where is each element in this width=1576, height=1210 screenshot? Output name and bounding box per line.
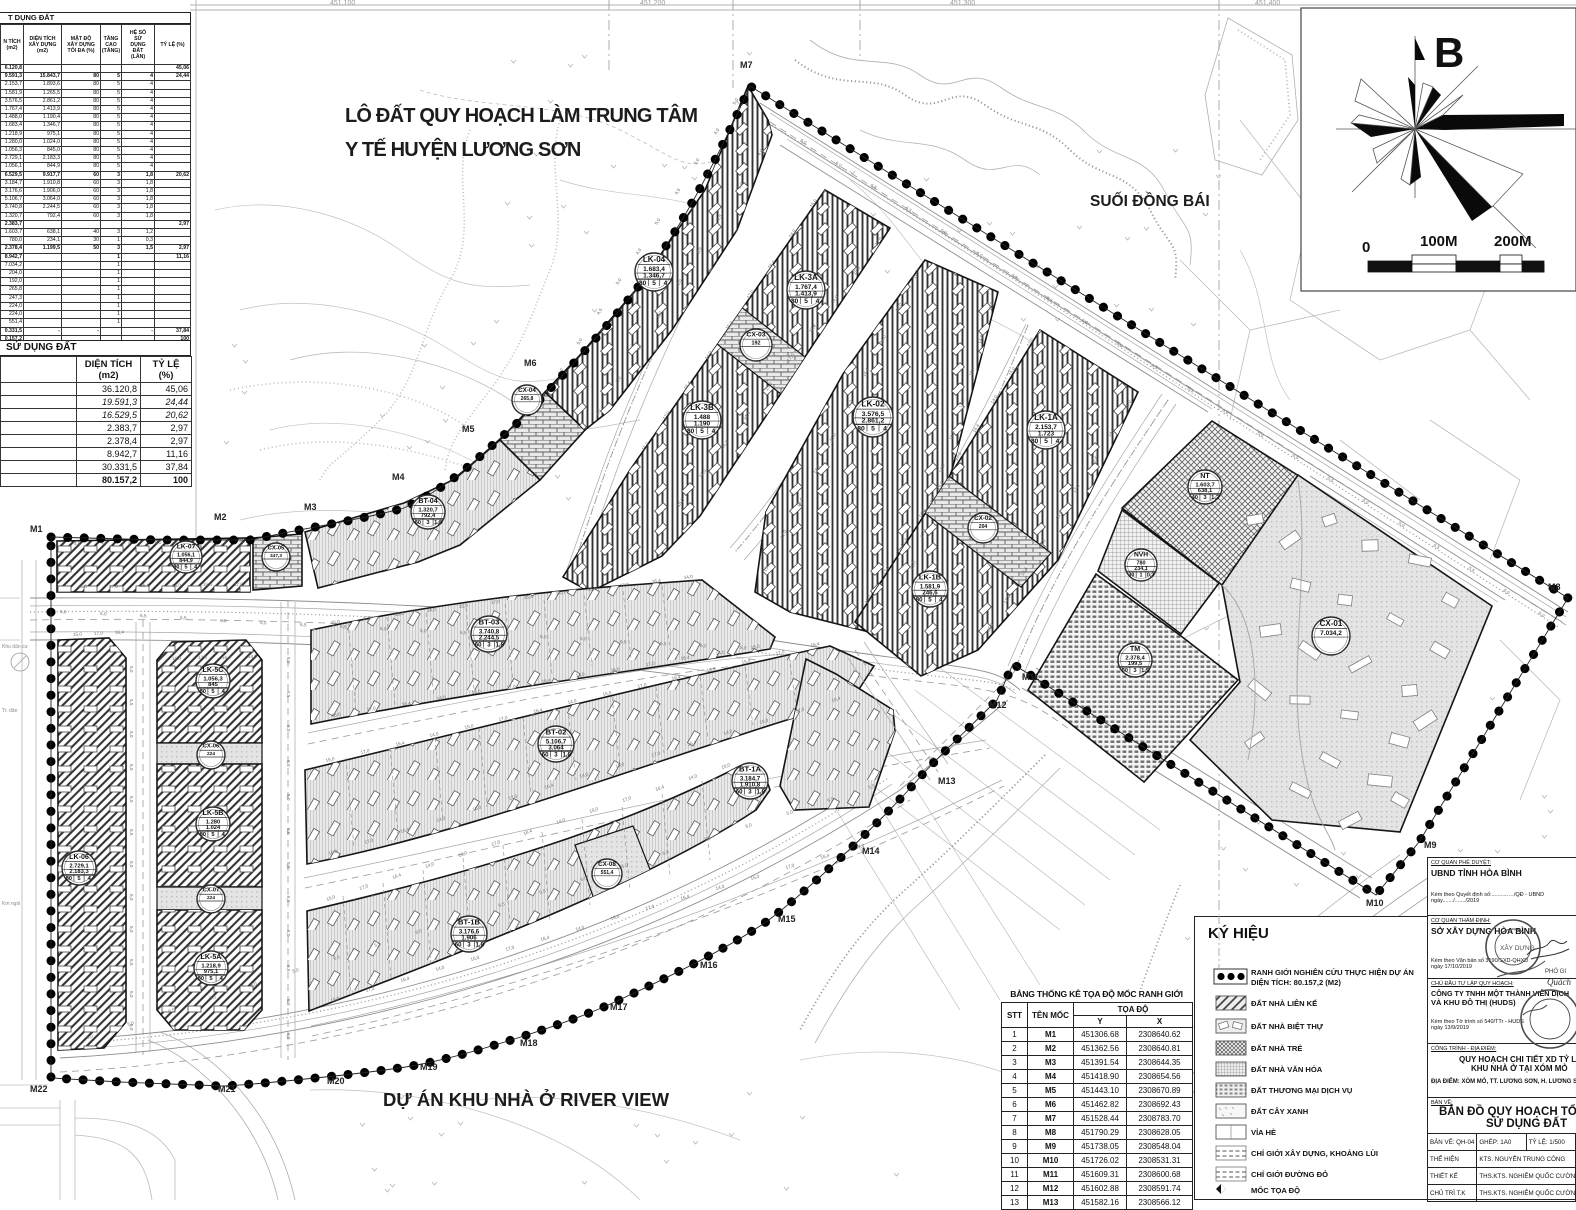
svg-text:LK-5A: LK-5A — [201, 953, 222, 961]
svg-text:CX-02: CX-02 — [974, 515, 992, 522]
svg-text:5,0: 5,0 — [286, 862, 291, 869]
svg-text:XÂY DỰNG: XÂY DỰNG — [1500, 943, 1535, 952]
svg-text:M4: M4 — [392, 472, 405, 482]
svg-text:M9: M9 — [1424, 840, 1437, 850]
svg-text:M6: M6 — [524, 358, 537, 368]
svg-text:DIỆN TÍCH: 80.157,2 (M2): DIỆN TÍCH: 80.157,2 (M2) — [1251, 978, 1341, 987]
svg-text:5: 5 — [652, 280, 656, 287]
svg-text:5: 5 — [1044, 438, 1048, 445]
svg-text:6,0: 6,0 — [286, 1033, 291, 1040]
svg-text:CX-04: CX-04 — [518, 387, 536, 394]
svg-text:15,0: 15,0 — [73, 632, 83, 637]
svg-text:LK-3B: LK-3B — [690, 403, 714, 412]
svg-text:80: 80 — [200, 689, 206, 695]
svg-text:6,0: 6,0 — [129, 894, 134, 901]
svg-text:LK-07: LK-07 — [177, 544, 196, 551]
svg-text:6,0: 6,0 — [700, 643, 707, 648]
svg-text:SUỐI ĐỒNG BÁI: SUỐI ĐỒNG BÁI — [1090, 192, 1210, 210]
svg-text:5: 5 — [700, 428, 704, 435]
svg-text:4: 4 — [883, 426, 887, 433]
svg-text:5,0: 5,0 — [129, 666, 134, 673]
svg-text:14,0: 14,0 — [172, 583, 181, 588]
svg-text:LK-5C: LK-5C — [203, 666, 224, 674]
svg-text:BT-02: BT-02 — [546, 728, 567, 737]
svg-text:M16: M16 — [700, 960, 718, 970]
svg-text:80: 80 — [791, 298, 799, 305]
svg-text:BT-1A: BT-1A — [739, 765, 761, 774]
svg-text:347,3: 347,3 — [270, 553, 282, 559]
svg-text:ĐẤT CÂY XANH: ĐẤT CÂY XANH — [1251, 1106, 1308, 1116]
svg-text:LK-02: LK-02 — [861, 399, 885, 409]
svg-text:PHÓ GI: PHÓ GI — [1545, 968, 1566, 975]
svg-text:4,0: 4,0 — [74, 541, 81, 546]
svg-text:80: 80 — [916, 597, 923, 604]
svg-text:40: 40 — [1192, 495, 1198, 501]
svg-text:ĐẤT NHÀ TRẺ: ĐẤT NHÀ TRẺ — [1251, 1043, 1302, 1053]
svg-text:192: 192 — [752, 341, 761, 347]
svg-text:M20: M20 — [327, 1076, 345, 1086]
svg-text:M14: M14 — [862, 846, 880, 856]
svg-text:5,0: 5,0 — [286, 930, 291, 937]
svg-text:1,8: 1,8 — [496, 642, 505, 649]
svg-text:265,8: 265,8 — [521, 396, 534, 402]
svg-text:Km ngòi: Km ngòi — [2, 901, 20, 907]
svg-text:CHỈ GIỚI ĐƯỜNG ĐỎ: CHỈ GIỚI ĐƯỜNG ĐỎ — [1251, 1170, 1328, 1179]
svg-text:NVH: NVH — [1134, 552, 1148, 559]
svg-text:551,4: 551,4 — [601, 870, 614, 876]
svg-text:5,0: 5,0 — [286, 725, 291, 732]
svg-text:M18: M18 — [520, 1038, 538, 1048]
svg-text:5,5: 5,5 — [340, 624, 347, 629]
svg-text:200M: 200M — [1494, 233, 1532, 250]
svg-text:5,0: 5,0 — [129, 926, 134, 933]
svg-text:M7: M7 — [740, 60, 753, 70]
svg-text:50: 50 — [1122, 668, 1128, 674]
svg-text:6,5: 6,5 — [140, 613, 147, 618]
svg-text:17,0: 17,0 — [94, 631, 104, 636]
svg-text:M11: M11 — [1022, 672, 1039, 682]
svg-text:5,0: 5,0 — [740, 645, 747, 650]
svg-text:16,4: 16,4 — [222, 655, 231, 660]
svg-text:4: 4 — [1056, 438, 1060, 445]
svg-text:224: 224 — [207, 751, 215, 757]
svg-text:5,0: 5,0 — [100, 611, 107, 616]
svg-text:DỰ ÁN KHU NHÀ Ở RIVER VIEW: DỰ ÁN KHU NHÀ Ở RIVER VIEW — [383, 1089, 670, 1110]
svg-text:1,8: 1,8 — [757, 789, 766, 796]
svg-text:CX-07: CX-07 — [203, 888, 220, 894]
svg-text:1,8: 1,8 — [434, 520, 443, 526]
svg-text:1,8: 1,8 — [476, 942, 485, 949]
svg-text:6,0: 6,0 — [286, 896, 291, 903]
svg-text:5,5: 5,5 — [286, 828, 291, 835]
svg-text:5,0: 5,0 — [286, 794, 291, 801]
svg-text:M13: M13 — [938, 776, 956, 786]
svg-text:15,0: 15,0 — [172, 656, 181, 661]
svg-text:6,5: 6,5 — [460, 630, 467, 635]
svg-text:4: 4 — [194, 565, 197, 571]
svg-text:60: 60 — [475, 642, 482, 649]
svg-text:5,0: 5,0 — [129, 796, 134, 803]
svg-text:M10: M10 — [1366, 898, 1384, 908]
svg-text:RANH GIỚI NGHIÊN CỨU THỰC HIỆN: RANH GIỚI NGHIÊN CỨU THỰC HIỆN DỰ ÁN — [1251, 968, 1414, 977]
svg-text:1.346,7: 1.346,7 — [643, 273, 665, 280]
svg-text:80: 80 — [66, 876, 72, 882]
svg-text:BT-1B: BT-1B — [458, 918, 480, 927]
svg-text:5,0: 5,0 — [129, 731, 134, 738]
svg-text:M19: M19 — [420, 1062, 438, 1072]
svg-text:4: 4 — [816, 298, 820, 305]
svg-text:17,0: 17,0 — [198, 655, 207, 660]
svg-text:LK-04: LK-04 — [643, 255, 666, 264]
svg-text:6,0: 6,0 — [286, 760, 291, 767]
svg-text:80: 80 — [639, 280, 647, 287]
svg-text:1,8: 1,8 — [563, 752, 572, 759]
svg-text:5,5: 5,5 — [129, 699, 134, 706]
svg-text:CX-05: CX-05 — [268, 546, 285, 552]
svg-text:5,5: 5,5 — [129, 959, 134, 966]
svg-text:0: 0 — [1362, 239, 1370, 256]
svg-text:6,0: 6,0 — [220, 618, 227, 623]
svg-text:Quách: Quách — [1547, 977, 1571, 987]
svg-text:2.861,2: 2.861,2 — [862, 418, 885, 425]
svg-text:60: 60 — [736, 789, 743, 796]
svg-text:16,4: 16,4 — [115, 630, 125, 635]
svg-text:5: 5 — [185, 565, 188, 571]
svg-text:5,0: 5,0 — [580, 636, 587, 641]
svg-text:100M: 100M — [1420, 233, 1458, 250]
svg-text:CX-08: CX-08 — [598, 861, 616, 868]
svg-text:M21: M21 — [218, 1084, 236, 1094]
svg-text:6,0: 6,0 — [540, 634, 547, 639]
svg-text:M3: M3 — [304, 502, 317, 512]
svg-text:M5: M5 — [462, 424, 475, 434]
svg-text:6,0: 6,0 — [380, 626, 387, 631]
svg-text:MỐC TỌA ĐỘ: MỐC TỌA ĐỘ — [1251, 1185, 1300, 1195]
svg-text:30: 30 — [1128, 573, 1134, 579]
svg-text:M17: M17 — [610, 1002, 628, 1012]
svg-text:ĐẤT NHÀ VĂN HÓA: ĐẤT NHÀ VĂN HÓA — [1251, 1064, 1323, 1074]
svg-text:1.413,9: 1.413,9 — [795, 291, 817, 298]
svg-text:6,5: 6,5 — [300, 622, 307, 627]
svg-text:VỈA HÈ: VỈA HÈ — [1251, 1128, 1276, 1137]
svg-text:5,5: 5,5 — [286, 691, 291, 698]
svg-text:5,5: 5,5 — [129, 829, 134, 836]
svg-text:Tr. dân: Tr. dân — [2, 708, 18, 714]
svg-text:LK-06: LK-06 — [69, 853, 89, 861]
svg-text:17,0: 17,0 — [109, 584, 118, 589]
svg-text:17,0: 17,0 — [234, 582, 243, 587]
svg-text:Y TẾ HUYỆN LƯƠNG SƠN: Y TẾ HUYỆN LƯƠNG SƠN — [345, 137, 581, 161]
svg-text:5,0: 5,0 — [129, 861, 134, 868]
svg-text:5,0: 5,0 — [260, 620, 267, 625]
svg-text:LK-1B: LK-1B — [919, 573, 942, 582]
svg-text:BT-04: BT-04 — [418, 497, 437, 505]
svg-text:4: 4 — [664, 280, 668, 287]
svg-text:5,0: 5,0 — [286, 999, 291, 1006]
svg-text:60: 60 — [415, 520, 421, 526]
svg-text:224: 224 — [207, 895, 215, 901]
svg-text:15,0: 15,0 — [203, 582, 212, 587]
svg-text:5: 5 — [871, 426, 875, 433]
svg-text:5,5: 5,5 — [286, 965, 291, 972]
svg-text:CX-01: CX-01 — [1320, 619, 1343, 628]
svg-text:0,3: 0,3 — [1147, 573, 1155, 579]
svg-text:5: 5 — [804, 298, 808, 305]
svg-text:6,5: 6,5 — [620, 639, 627, 644]
svg-text:6,0: 6,0 — [60, 609, 67, 614]
svg-text:M22: M22 — [30, 1084, 48, 1094]
svg-text:4: 4 — [712, 428, 716, 435]
svg-text:ĐẤT NHÀ LIÊN KẾ: ĐẤT NHÀ LIÊN KẾ — [1251, 998, 1317, 1008]
svg-text:M2: M2 — [214, 512, 227, 522]
svg-text:60: 60 — [542, 752, 549, 759]
svg-text:80: 80 — [173, 565, 179, 571]
svg-text:14,0: 14,0 — [248, 654, 257, 659]
svg-text:ĐẤT THƯƠNG MẠI DỊCH VỤ: ĐẤT THƯƠNG MẠI DỊCH VỤ — [1251, 1085, 1353, 1095]
svg-text:80: 80 — [1031, 438, 1039, 445]
svg-text:M15: M15 — [778, 914, 796, 924]
svg-text:60: 60 — [455, 942, 462, 949]
svg-text:80: 80 — [687, 428, 695, 435]
svg-text:LK-5B: LK-5B — [203, 809, 224, 817]
svg-text:LÔ ĐẤT QUY HOẠCH LÀM TRUNG TÂM: LÔ ĐẤT QUY HOẠCH LÀM TRUNG TÂM — [345, 103, 697, 127]
svg-text:Khu dân cư: Khu dân cư — [2, 644, 29, 650]
svg-text:ĐẤT NHÀ BIỆT THỰ: ĐẤT NHÀ BIỆT THỰ — [1251, 1021, 1324, 1031]
svg-text:80: 80 — [198, 976, 204, 982]
svg-text:M1: M1 — [30, 524, 43, 534]
svg-text:15,0: 15,0 — [78, 584, 87, 589]
svg-text:M12: M12 — [989, 700, 1007, 710]
svg-text:204: 204 — [979, 524, 988, 530]
svg-text:16,4: 16,4 — [140, 583, 149, 588]
svg-text:M8: M8 — [1548, 582, 1561, 592]
svg-text:1,2: 1,2 — [1211, 495, 1219, 501]
svg-text:CX-03: CX-03 — [747, 332, 766, 339]
svg-text:6,0: 6,0 — [129, 764, 134, 771]
svg-text:80: 80 — [857, 426, 865, 433]
svg-text:80: 80 — [200, 832, 206, 838]
svg-text:CX-06: CX-06 — [203, 744, 220, 750]
svg-text:1,5: 1,5 — [1141, 668, 1150, 674]
svg-text:B: B — [1434, 29, 1464, 76]
svg-text:5,5: 5,5 — [660, 641, 667, 646]
svg-text:5,0: 5,0 — [286, 657, 291, 664]
svg-text:CHỈ GIỚI XÂY DỰNG, KHOẢNG LÙI: CHỈ GIỚI XÂY DỰNG, KHOẢNG LÙI — [1251, 1149, 1378, 1158]
svg-text:LK-1A: LK-1A — [1034, 413, 1058, 422]
svg-text:5,5: 5,5 — [180, 615, 187, 620]
svg-text:7.034,2: 7.034,2 — [1320, 630, 1342, 637]
svg-text:5,0: 5,0 — [129, 991, 134, 998]
svg-text:1: 1 — [1140, 573, 1143, 579]
svg-text:NT: NT — [1200, 472, 1210, 480]
svg-text:LK-3A: LK-3A — [794, 273, 818, 282]
svg-text:BT-03: BT-03 — [479, 618, 500, 627]
svg-text:5,0: 5,0 — [420, 628, 427, 633]
svg-text:5,0: 5,0 — [155, 540, 162, 545]
svg-text:TM: TM — [1130, 645, 1140, 653]
